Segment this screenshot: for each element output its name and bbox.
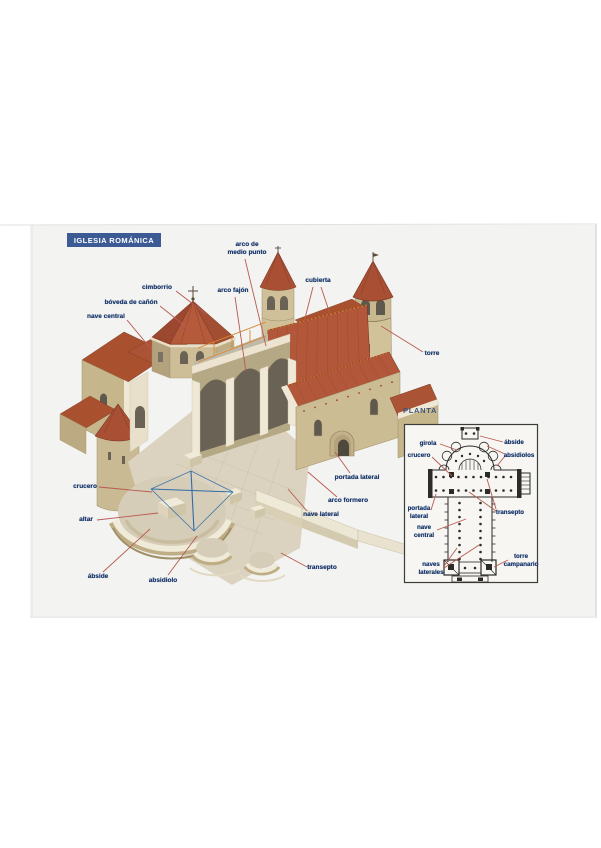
section-title: IGLESIA ROMÁNICA	[74, 236, 154, 245]
label-portada-lateral-plan: portada lateral	[408, 505, 431, 521]
label-transepto-plan: transepto	[496, 509, 524, 517]
label-absidiolo: absidiolo	[149, 577, 178, 585]
planta-title: PLANTA	[403, 406, 437, 415]
label-arco-formero: arco formero	[328, 497, 368, 505]
page-artwork	[0, 0, 601, 848]
label-nave-central-plan: nave central	[414, 524, 434, 540]
label-boveda-de-canon: bóveda de cañón	[104, 299, 157, 307]
scanned-textbook-page: IGLESIA ROMÁNICA PLANTA arco de medio pu…	[0, 0, 601, 848]
label-torre: torre	[425, 350, 440, 358]
label-portada-lateral: portada lateral	[335, 474, 380, 482]
label-arco-de-medio-punto: arco de medio punto	[228, 241, 267, 257]
section-banner: IGLESIA ROMÁNICA	[67, 233, 161, 247]
label-arco-fajon: arco fajón	[217, 287, 248, 295]
label-cimborrio: cimborrio	[142, 284, 172, 292]
label-altar: altar	[79, 516, 93, 524]
label-nave-central: nave central	[87, 313, 125, 321]
label-absidiolos: absidiolos	[504, 452, 535, 460]
label-crucero: crucero	[73, 483, 97, 491]
label-torre-campanario: torre campanario	[504, 553, 539, 569]
label-crucero-plan: crucero	[408, 452, 431, 460]
label-cubierta: cubierta	[305, 277, 330, 285]
label-nave-lateral: nave lateral	[303, 511, 339, 519]
label-abside-plan: ábside	[504, 439, 524, 447]
label-girola: girola	[420, 440, 437, 448]
label-transepto: transepto	[307, 564, 337, 572]
label-naves-laterales: naves laterales	[418, 561, 443, 577]
label-abside: ábside	[88, 573, 109, 581]
